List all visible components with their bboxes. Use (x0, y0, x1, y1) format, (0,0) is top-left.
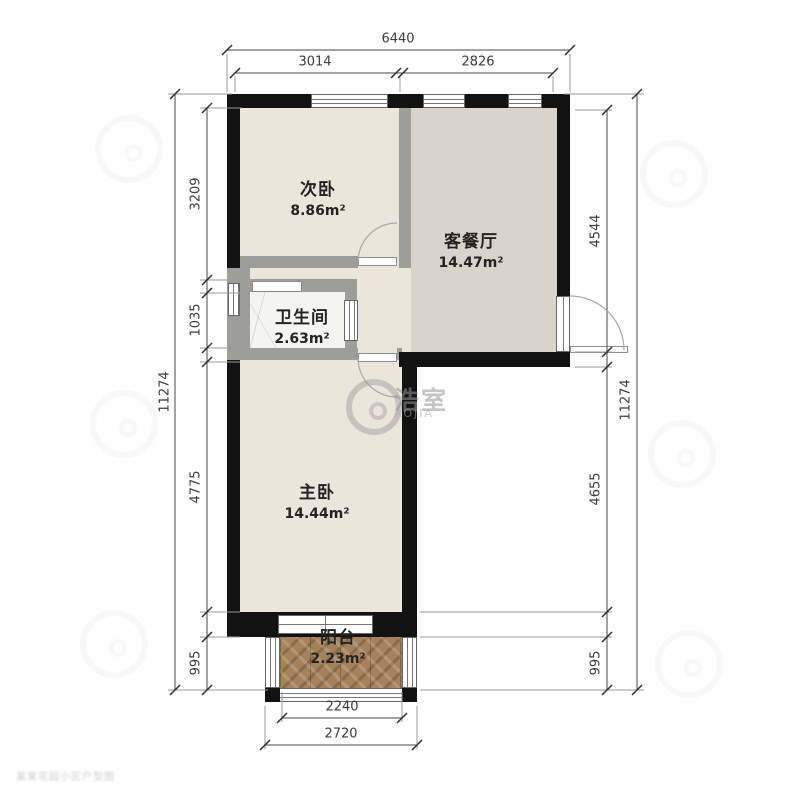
dim-bottom-b: 2720 (324, 727, 357, 742)
wall-living-south (399, 352, 570, 367)
room-name-living-dining: 客餐厅 (438, 227, 503, 252)
window-bathroom-west (228, 283, 240, 316)
wall-west (227, 94, 240, 637)
dim-top-total: 6440 (381, 32, 414, 47)
partition-secondary-bedroom-south (240, 256, 358, 268)
room-label-living-dining: 客餐厅 14.47m² (438, 227, 503, 271)
dim-left-b: 1035 (189, 303, 204, 336)
bathroom-niche (252, 281, 302, 292)
watermark-tile-icon (90, 390, 158, 458)
wall-north-a (227, 94, 311, 108)
window-living-b (508, 94, 542, 108)
dim-left-a: 3209 (189, 177, 204, 210)
room-name-secondary-bedroom: 次卧 (290, 175, 345, 200)
watermark-tile-icon (648, 420, 716, 488)
door-leaf-master-bedroom (358, 353, 397, 362)
room-label-balcony: 阳台 2.23m² (310, 623, 365, 667)
watermark-tile-icon (80, 610, 148, 678)
room-area-secondary-bedroom: 8.86m² (290, 203, 345, 219)
dim-top-a: 3014 (298, 55, 331, 70)
dim-right-total: 11274 (619, 379, 634, 420)
partition-bathroom-south (237, 348, 358, 360)
room-name-master-bedroom: 主卧 (284, 478, 349, 503)
room-area-living-dining: 14.47m² (438, 255, 503, 271)
room-name-balcony: 阳台 (310, 623, 365, 648)
entry-door-leaf (570, 346, 628, 353)
window-secondary-bedroom (311, 94, 388, 108)
watermark-tile-icon (655, 630, 723, 698)
watermark-brand-latin: AOJIA (394, 407, 434, 420)
watermark-corner-text: 某某花园小区户型图 (16, 768, 115, 783)
dim-right-c: 995 (589, 651, 604, 676)
wall-north-c (465, 94, 508, 108)
dim-left-total: 11274 (158, 371, 173, 412)
door-leaf-secondary-bedroom (358, 257, 397, 266)
room-area-bathroom: 2.63m² (274, 331, 329, 347)
dim-bottom-a: 2240 (325, 700, 358, 715)
watermark-tile-icon (95, 115, 163, 183)
dim-left-c: 4775 (189, 470, 204, 503)
wall-east-upper (557, 94, 570, 296)
dim-right-b: 4655 (589, 472, 604, 505)
floorplan-canvas: 次卧 8.86m² 客餐厅 14.47m² 卫生间 2.63m² 主卧 14.4… (0, 0, 800, 800)
balcony-window-right (402, 637, 417, 688)
dim-top-b: 2826 (461, 55, 494, 70)
room-label-bathroom: 卫生间 2.63m² (274, 303, 329, 347)
room-label-secondary-bedroom: 次卧 8.86m² (290, 175, 345, 219)
window-living-a (423, 94, 465, 108)
door-bathroom (344, 300, 358, 341)
room-label-master-bedroom: 主卧 14.44m² (284, 478, 349, 522)
dim-left-d: 995 (189, 651, 204, 676)
room-area-master-bedroom: 14.44m² (284, 506, 349, 522)
dim-right-a: 4544 (589, 214, 604, 247)
balcony-corner-post-right (402, 688, 417, 702)
wall-north-b (388, 94, 423, 108)
watermark-tile-icon (640, 140, 708, 208)
floorplan-page: { "rooms": { "secondary_bedroom": {"name… (0, 0, 800, 800)
balcony-corner-post-left (265, 688, 280, 702)
room-area-balcony: 2.23m² (310, 651, 365, 667)
room-name-bathroom: 卫生间 (274, 303, 329, 328)
partition-bedroom-living (399, 108, 411, 268)
entry-door-jamb (556, 296, 570, 352)
balcony-window-left (265, 637, 280, 688)
